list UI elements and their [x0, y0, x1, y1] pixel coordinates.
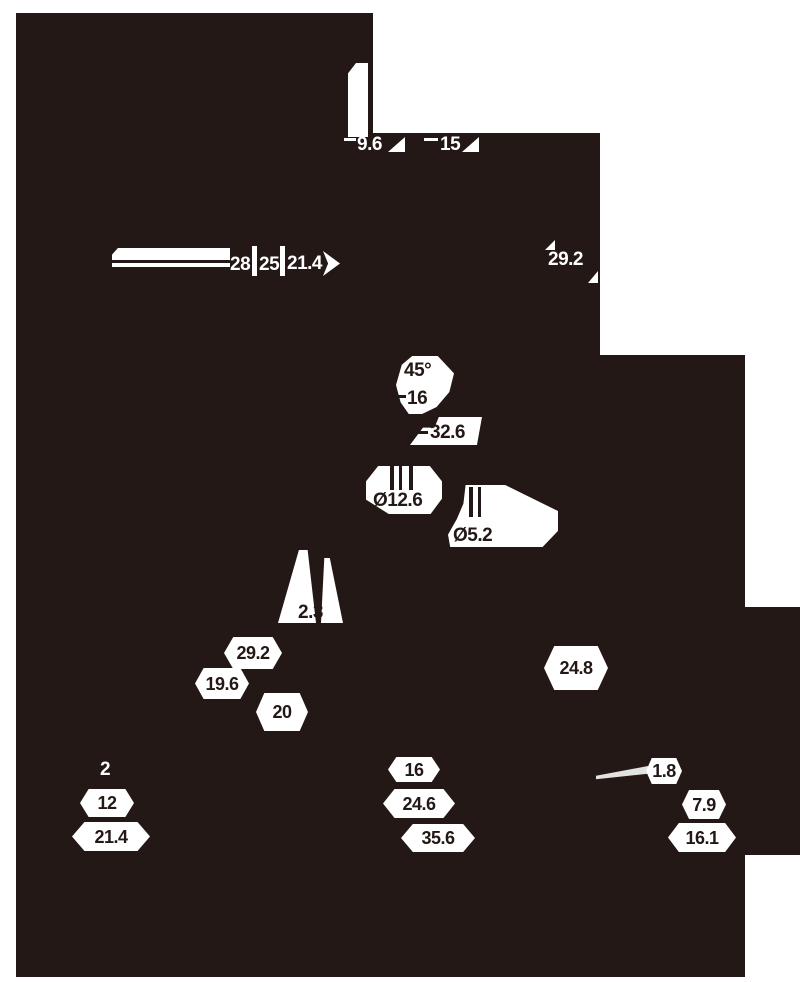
- dim-dia-12-6: Ø12.6: [373, 491, 422, 510]
- dim-45deg: 45°: [404, 361, 431, 380]
- dim-29-2-right: 29.2: [548, 250, 583, 269]
- dim-16-1-text: 16.1: [685, 829, 718, 847]
- dim-line: [418, 431, 428, 434]
- hole-line: [469, 487, 473, 517]
- dim-2-3: 2.3: [298, 603, 323, 622]
- dim-28: 28: [230, 255, 250, 274]
- silhouette-left-column: [16, 13, 373, 977]
- dim-35-6-text: 35.6: [421, 829, 454, 847]
- dim-9-6: 9.6: [357, 135, 382, 154]
- silhouette-right-column: [600, 355, 745, 977]
- dim-16-bottom: 16: [388, 757, 440, 782]
- dim-line: [398, 395, 406, 398]
- dim-12: 12: [80, 789, 134, 817]
- dim-20-text: 20: [272, 703, 291, 721]
- dim-line: [424, 138, 438, 141]
- dim-19-6: 19.6: [195, 668, 249, 699]
- dim-21-4-bottom-text: 21.4: [94, 828, 127, 846]
- dim-24-6: 24.6: [383, 789, 455, 818]
- dim-7-9: 7.9: [682, 790, 726, 819]
- dim-32-6: 32.6: [430, 423, 465, 442]
- dim-2: 2: [100, 760, 110, 779]
- hole-line: [399, 466, 402, 490]
- dim-15: 15: [440, 135, 460, 154]
- slot-shape: [348, 63, 368, 137]
- dim-35-6: 35.6: [401, 824, 475, 852]
- dim-21-4-top: 21.4: [287, 254, 322, 273]
- dim-24-8: 24.8: [544, 646, 608, 690]
- hole-line: [390, 466, 394, 490]
- dim-24-8-text: 24.8: [559, 659, 592, 677]
- hole-line: [478, 487, 481, 517]
- dim-tick: [252, 246, 257, 276]
- dim-1-8: 1.8: [646, 758, 682, 784]
- dim-20: 20: [256, 693, 308, 731]
- dim-bar: [112, 248, 230, 260]
- hole-line: [409, 466, 413, 490]
- dim-29-2-left: 29.2: [224, 637, 282, 669]
- dim-tick: [280, 246, 285, 276]
- dim-16-top: 16: [407, 389, 427, 408]
- dim-25: 25: [259, 255, 279, 274]
- dim-7-9-text: 7.9: [692, 796, 716, 814]
- dim-21-4-bottom: 21.4: [72, 822, 150, 851]
- dim-19-6-text: 19.6: [205, 675, 238, 693]
- drawing-canvas: 9.6 15 28 25 21.4 29.2 45° 16 32.6 Ø12.6…: [0, 0, 800, 982]
- dim-24-6-text: 24.6: [402, 795, 435, 813]
- dim-16-1: 16.1: [668, 823, 736, 852]
- dim-12-text: 12: [97, 794, 116, 812]
- dim-29-2-left-text: 29.2: [236, 644, 269, 662]
- dim-line: [344, 138, 356, 141]
- silhouette-far-right-column: [745, 607, 800, 855]
- dim-dia-5-2: Ø5.2: [453, 526, 492, 545]
- dim-1-8-text: 1.8: [652, 762, 676, 780]
- dim-bar-strip: [112, 263, 230, 267]
- dim-16-bottom-text: 16: [404, 761, 423, 779]
